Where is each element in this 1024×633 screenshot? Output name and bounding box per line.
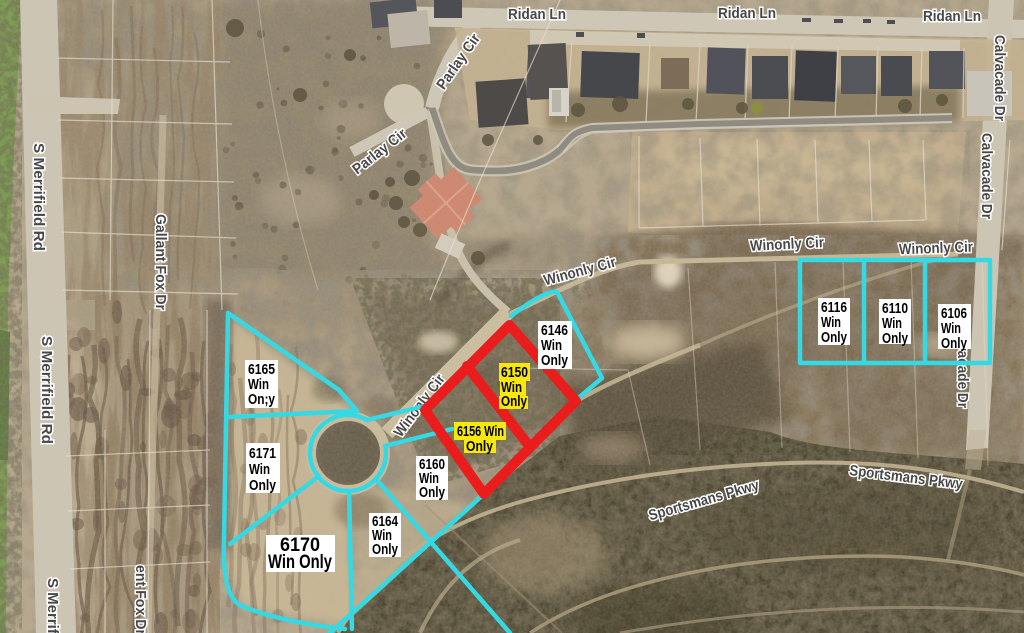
svg-text:6156 Win: 6156 Win xyxy=(457,424,504,440)
svg-text:6171: 6171 xyxy=(249,446,276,462)
svg-text:6165: 6165 xyxy=(248,362,275,378)
svg-text:Only: Only xyxy=(249,478,276,494)
svg-text:S Merrifield Rd: S Merrifield Rd xyxy=(30,143,47,251)
svg-text:6110: 6110 xyxy=(882,301,908,317)
svg-text:S Merrifield Rd: S Merrifield Rd xyxy=(38,336,55,444)
svg-text:ent Fox Dr: ent Fox Dr xyxy=(132,565,149,633)
svg-text:Win: Win xyxy=(248,377,269,393)
svg-text:6146: 6146 xyxy=(541,323,568,339)
svg-text:On;y: On;y xyxy=(248,392,275,408)
svg-text:Only: Only xyxy=(501,394,527,410)
svg-text:6116: 6116 xyxy=(821,300,847,316)
svg-text:Win: Win xyxy=(249,462,270,478)
svg-text:Only: Only xyxy=(541,353,568,369)
svg-text:6106: 6106 xyxy=(941,306,967,322)
svg-text:Ridan Ln: Ridan Ln xyxy=(923,8,981,25)
svg-text:Calvacade Dr: Calvacade Dr xyxy=(978,133,995,219)
svg-text:Win: Win xyxy=(541,338,562,354)
svg-text:S Merrifield: S Merrifield xyxy=(44,578,61,633)
svg-text:Only: Only xyxy=(941,336,967,352)
svg-text:Only: Only xyxy=(882,331,908,347)
svg-text:Win: Win xyxy=(882,316,902,332)
svg-text:Win: Win xyxy=(821,315,841,331)
svg-text:Only: Only xyxy=(419,485,445,501)
svg-text:Win: Win xyxy=(941,321,961,337)
svg-text:Only: Only xyxy=(821,330,847,346)
svg-text:Ridan Ln: Ridan Ln xyxy=(718,5,776,22)
svg-text:Winonly Cir: Winonly Cir xyxy=(899,239,974,259)
svg-text:Only: Only xyxy=(466,439,493,455)
svg-text:Win Only: Win Only xyxy=(268,552,332,573)
svg-text:Ridan Ln: Ridan Ln xyxy=(508,6,566,23)
svg-text:Only: Only xyxy=(372,542,398,558)
svg-text:6150: 6150 xyxy=(501,365,528,381)
svg-text:Gallant Fox Dr: Gallant Fox Dr xyxy=(152,214,169,310)
svg-text:Calvacade Dr: Calvacade Dr xyxy=(991,35,1008,121)
